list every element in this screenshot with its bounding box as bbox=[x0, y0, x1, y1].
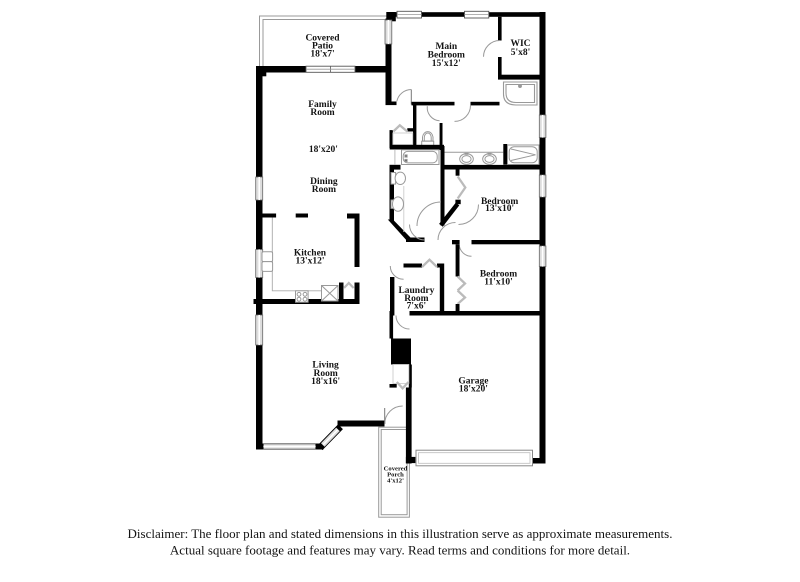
svg-text:7'x6': 7'x6' bbox=[407, 302, 427, 312]
svg-text:Room: Room bbox=[310, 108, 334, 118]
svg-text:13'x10': 13'x10' bbox=[485, 204, 514, 214]
svg-text:5'x8': 5'x8' bbox=[511, 48, 531, 58]
svg-text:Actual square footage and feat: Actual square footage and features may v… bbox=[170, 543, 630, 558]
svg-text:Disclaimer: The floor plan and: Disclaimer: The floor plan and stated di… bbox=[128, 526, 673, 541]
svg-text:15'x12': 15'x12' bbox=[432, 59, 461, 69]
svg-text:18'x20': 18'x20' bbox=[459, 385, 488, 395]
svg-text:18'x7': 18'x7' bbox=[310, 49, 334, 59]
svg-text:18'x16': 18'x16' bbox=[311, 377, 340, 387]
svg-text:11'x10': 11'x10' bbox=[484, 277, 513, 287]
svg-text:4'x12': 4'x12' bbox=[387, 477, 404, 484]
svg-text:18'x20': 18'x20' bbox=[309, 145, 338, 155]
svg-text:13'x12': 13'x12' bbox=[295, 256, 324, 266]
svg-text:Room: Room bbox=[312, 185, 336, 195]
